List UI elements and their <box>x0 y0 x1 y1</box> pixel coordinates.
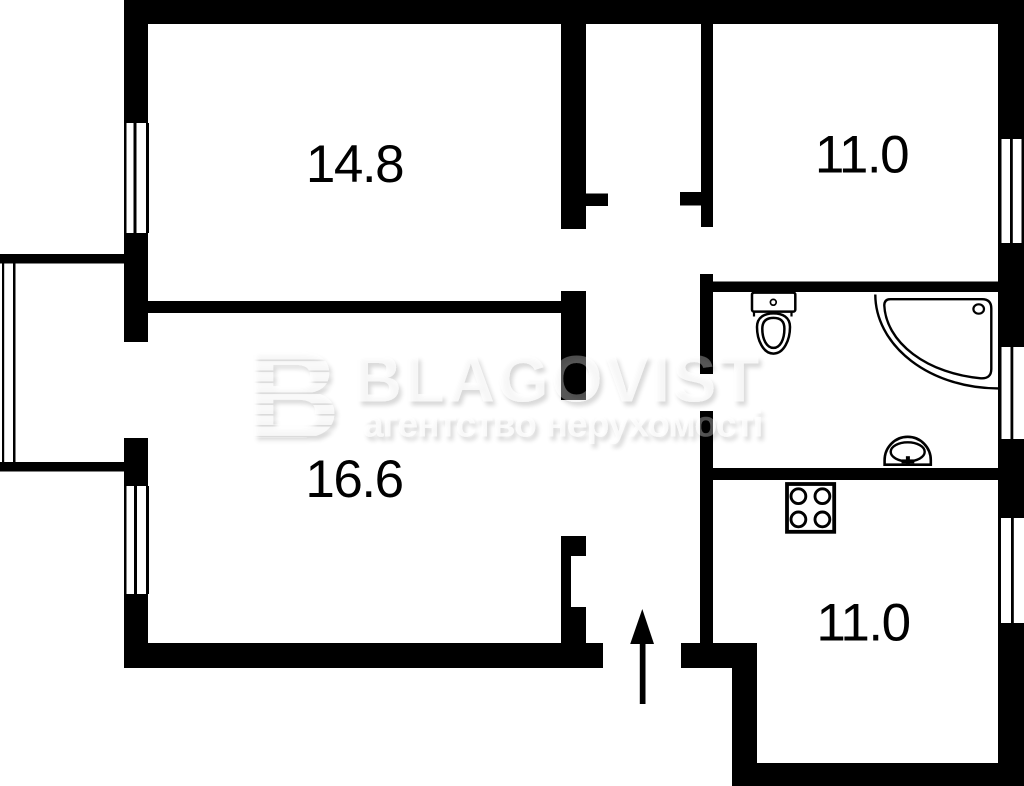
svg-text:агентство нерухомості: агентство нерухомості <box>363 404 762 445</box>
svg-text:14.8: 14.8 <box>306 135 403 194</box>
svg-text:11.0: 11.0 <box>816 594 909 653</box>
svg-text:16.6: 16.6 <box>305 450 402 509</box>
svg-text:11.0: 11.0 <box>815 126 908 185</box>
